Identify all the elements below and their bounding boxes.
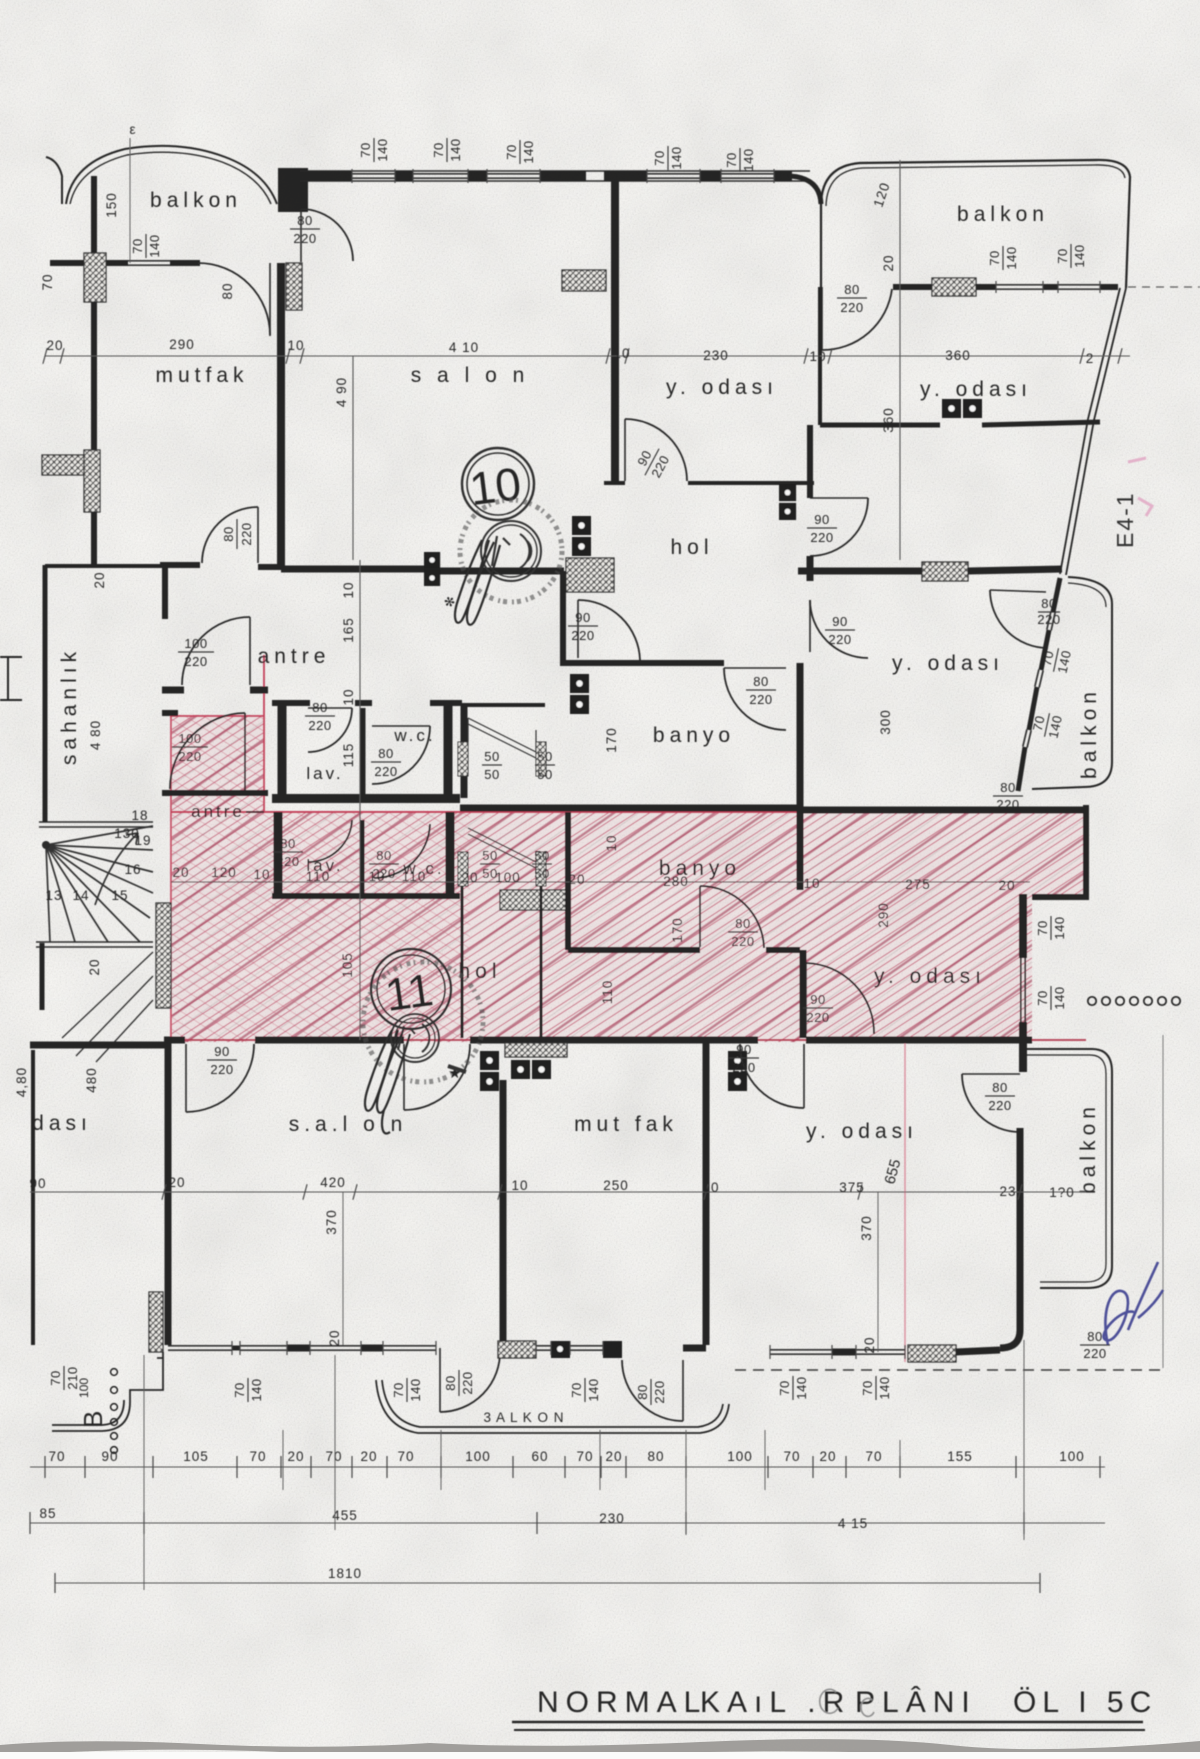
- svg-text:4 80: 4 80: [88, 720, 103, 750]
- svg-text:290: 290: [169, 337, 195, 352]
- svg-text:140: 140: [408, 1378, 423, 1401]
- svg-text:ε: ε: [129, 122, 136, 137]
- svg-text:ÖL I 5C: ÖL I 5C: [1013, 1686, 1157, 1719]
- svg-text:sahanlık: sahanlık: [58, 647, 81, 765]
- svg-text:105: 105: [183, 1449, 209, 1464]
- svg-text:18: 18: [131, 808, 148, 823]
- svg-text:10: 10: [702, 1180, 719, 1195]
- svg-text:70: 70: [860, 1380, 875, 1395]
- svg-text:70: 70: [1055, 248, 1070, 263]
- svg-text:140: 140: [249, 1378, 264, 1401]
- svg-text:20: 20: [92, 571, 107, 588]
- svg-text:220: 220: [210, 1062, 233, 1077]
- svg-text:70: 70: [130, 238, 145, 253]
- svg-text:20: 20: [605, 1449, 622, 1464]
- svg-text:140: 140: [1072, 244, 1087, 267]
- svg-text:80: 80: [992, 1080, 1007, 1095]
- svg-text:170: 170: [604, 727, 619, 753]
- svg-text:23: 23: [999, 1184, 1016, 1199]
- svg-text:220: 220: [732, 1060, 755, 1075]
- svg-text:80: 80: [297, 213, 312, 228]
- svg-text:220: 220: [374, 764, 397, 779]
- svg-text:4 90: 4 90: [334, 377, 349, 407]
- svg-text:hol: hol: [458, 960, 501, 983]
- svg-text:80: 80: [1000, 780, 1015, 795]
- svg-text:80: 80: [635, 1384, 650, 1399]
- svg-text:110: 110: [600, 980, 615, 1005]
- svg-text:70: 70: [391, 1382, 406, 1397]
- svg-text:y. odası: y. odası: [666, 376, 778, 399]
- svg-text:20: 20: [998, 878, 1015, 893]
- svg-text:10: 10: [803, 876, 820, 891]
- svg-text:90: 90: [575, 610, 590, 625]
- svg-text:90: 90: [814, 512, 829, 527]
- svg-text:115: 115: [341, 743, 356, 768]
- svg-text:w.c.: w.c.: [393, 726, 435, 745]
- svg-text:220: 220: [731, 934, 754, 949]
- svg-text:220: 220: [571, 628, 594, 643]
- svg-text:220: 220: [652, 1380, 667, 1403]
- svg-text:140: 140: [877, 1376, 892, 1399]
- svg-text:70: 70: [431, 142, 446, 157]
- svg-text:20: 20: [87, 958, 102, 975]
- svg-text:10: 10: [613, 346, 630, 361]
- svg-text:220: 220: [806, 1010, 829, 1025]
- svg-text:480: 480: [84, 1067, 99, 1093]
- svg-text:220: 220: [810, 530, 833, 545]
- svg-text:360: 360: [881, 407, 896, 433]
- svg-text:220: 220: [988, 1098, 1011, 1113]
- svg-text:250: 250: [603, 1178, 629, 1193]
- svg-text:50: 50: [534, 866, 549, 881]
- svg-text:90: 90: [736, 1042, 751, 1057]
- svg-text:220: 220: [276, 854, 299, 869]
- svg-text:1?0: 1?0: [1049, 1185, 1075, 1200]
- svg-text:220: 220: [293, 231, 316, 246]
- svg-text:140: 140: [1052, 986, 1067, 1009]
- svg-text:E4-1: E4-1: [1112, 491, 1138, 548]
- svg-text:balkon: balkon: [957, 203, 1049, 226]
- svg-text:14: 14: [72, 888, 89, 903]
- svg-text:80: 80: [378, 746, 393, 761]
- svg-text:220: 220: [239, 522, 254, 545]
- svg-text:300: 300: [878, 709, 893, 735]
- svg-text:70: 70: [783, 1449, 800, 1464]
- svg-text:20: 20: [461, 870, 478, 885]
- svg-text:85: 85: [39, 1506, 56, 1521]
- svg-text:50: 50: [534, 848, 549, 863]
- svg-text:70: 70: [358, 142, 373, 157]
- svg-text:370: 370: [324, 1209, 339, 1235]
- svg-text:90: 90: [214, 1044, 229, 1059]
- svg-text:NORMAL: NORMAL: [537, 1686, 707, 1719]
- svg-text:3 A L K O N: 3 A L K O N: [483, 1410, 564, 1425]
- svg-text:y. odası: y. odası: [874, 965, 986, 988]
- svg-text:10: 10: [809, 349, 826, 364]
- svg-text:220: 220: [184, 654, 207, 669]
- svg-text:140: 140: [1004, 246, 1019, 269]
- svg-text:155: 155: [947, 1449, 973, 1464]
- svg-text:antre: antre: [191, 802, 245, 821]
- svg-text:100: 100: [1059, 1449, 1085, 1464]
- svg-text:10: 10: [368, 869, 385, 884]
- svg-text:100: 100: [184, 636, 207, 651]
- svg-text:10: 10: [341, 581, 356, 598]
- svg-text:70: 70: [724, 152, 739, 167]
- svg-text:balkon: balkon: [150, 189, 242, 212]
- svg-text:4 10: 4 10: [449, 340, 479, 355]
- svg-text:140: 140: [147, 234, 162, 257]
- svg-text:110: 110: [402, 869, 427, 884]
- svg-text:20: 20: [46, 338, 63, 353]
- svg-text:10: 10: [287, 338, 304, 353]
- svg-text:balkon: balkon: [1078, 687, 1101, 779]
- svg-text:13: 13: [45, 888, 62, 903]
- svg-text:455: 455: [332, 1508, 358, 1523]
- svg-text:20: 20: [287, 1449, 304, 1464]
- svg-text:170: 170: [670, 917, 685, 943]
- svg-text:20: 20: [172, 865, 189, 880]
- svg-text:140: 140: [448, 138, 463, 161]
- svg-text:50: 50: [484, 767, 499, 782]
- svg-text:mutfak: mutfak: [155, 364, 248, 387]
- svg-text:dası: dası: [32, 1112, 92, 1135]
- svg-text:B: B: [78, 1411, 108, 1428]
- svg-text:70: 70: [865, 1449, 882, 1464]
- svg-text:80: 80: [220, 282, 235, 299]
- svg-text:140: 140: [741, 148, 756, 171]
- svg-text:10: 10: [604, 834, 619, 851]
- svg-text:220: 220: [749, 692, 772, 707]
- svg-text:70: 70: [576, 1449, 593, 1464]
- svg-text:70: 70: [652, 150, 667, 165]
- svg-text:hol: hol: [670, 536, 713, 559]
- svg-text:70: 70: [232, 1382, 247, 1397]
- svg-text:y. odası: y. odası: [892, 652, 1004, 675]
- svg-text:80: 80: [443, 1375, 458, 1390]
- svg-text:80: 80: [312, 700, 327, 715]
- svg-text:balkon: balkon: [1077, 1102, 1100, 1194]
- svg-text:70: 70: [48, 1370, 63, 1385]
- svg-text:220: 220: [308, 718, 331, 733]
- svg-text:20: 20: [360, 1449, 377, 1464]
- svg-text:50: 50: [537, 767, 552, 782]
- svg-text:20: 20: [168, 1175, 185, 1190]
- svg-text:80: 80: [280, 836, 295, 851]
- svg-text:130: 130: [114, 826, 140, 841]
- svg-text:80: 80: [221, 526, 236, 541]
- svg-text:4,80: 4,80: [14, 1067, 29, 1097]
- svg-text:70: 70: [1030, 714, 1048, 732]
- svg-text:80: 80: [753, 674, 768, 689]
- svg-text:80: 80: [844, 282, 859, 297]
- svg-text:275: 275: [905, 877, 931, 892]
- svg-text:290: 290: [876, 902, 891, 928]
- svg-text:y. odası: y. odası: [806, 1120, 918, 1143]
- svg-text:100: 100: [495, 870, 521, 885]
- svg-text:lav.: lav.: [306, 764, 343, 783]
- svg-text:70: 70: [325, 1449, 342, 1464]
- svg-text:100: 100: [465, 1449, 491, 1464]
- svg-text:90: 90: [29, 1176, 46, 1191]
- svg-text:370: 370: [859, 1215, 874, 1241]
- svg-text:80: 80: [376, 848, 391, 863]
- svg-text:y. odası: y. odası: [920, 378, 1032, 401]
- svg-text:70: 70: [504, 144, 519, 159]
- svg-text:70: 70: [48, 1449, 65, 1464]
- svg-text:10: 10: [511, 1178, 528, 1193]
- svg-text:mut fak: mut fak: [574, 1113, 678, 1136]
- svg-text:2: 2: [1086, 351, 1095, 366]
- svg-text:100: 100: [727, 1449, 753, 1464]
- svg-text:220: 220: [178, 749, 201, 764]
- svg-text:80: 80: [647, 1449, 664, 1464]
- svg-text:140: 140: [1052, 916, 1067, 939]
- svg-text:10: 10: [253, 867, 270, 882]
- svg-text:70: 70: [1035, 990, 1050, 1005]
- svg-text:140: 140: [586, 1378, 601, 1401]
- svg-text:220: 220: [840, 300, 863, 315]
- svg-text:100: 100: [77, 1378, 91, 1398]
- svg-text:90: 90: [832, 614, 847, 629]
- svg-text:20: 20: [819, 1449, 836, 1464]
- svg-text:60: 60: [531, 1449, 548, 1464]
- svg-text:70: 70: [1039, 649, 1057, 667]
- svg-text:105: 105: [340, 952, 355, 978]
- svg-text:140: 140: [375, 138, 390, 161]
- svg-text:80: 80: [1087, 1329, 1102, 1344]
- svg-text:10: 10: [467, 457, 524, 515]
- svg-text:50: 50: [484, 749, 499, 764]
- svg-text:20: 20: [881, 254, 896, 271]
- svg-text:11: 11: [382, 963, 437, 1021]
- svg-text:280: 280: [663, 874, 689, 889]
- svg-text:antre: antre: [258, 645, 331, 668]
- svg-text:70: 70: [249, 1449, 266, 1464]
- svg-text:20: 20: [862, 1336, 877, 1353]
- svg-text:220: 220: [828, 632, 851, 647]
- svg-text:90: 90: [101, 1449, 118, 1464]
- svg-text:70: 70: [40, 273, 55, 290]
- svg-text:70: 70: [569, 1382, 584, 1397]
- svg-text:150: 150: [104, 192, 119, 218]
- svg-text:230: 230: [599, 1511, 625, 1526]
- svg-text:20: 20: [327, 1329, 342, 1346]
- svg-text:50: 50: [537, 749, 552, 764]
- svg-text:375: 375: [839, 1180, 865, 1195]
- svg-text:80: 80: [735, 916, 750, 931]
- svg-text:16: 16: [124, 862, 141, 877]
- svg-text:banyo: banyo: [653, 724, 735, 747]
- svg-text:70: 70: [777, 1380, 792, 1395]
- svg-text:10: 10: [341, 688, 356, 705]
- svg-text:165: 165: [341, 617, 356, 643]
- svg-text:230: 230: [703, 348, 729, 363]
- svg-text:140: 140: [794, 1376, 809, 1399]
- svg-text:s a l o n: s a l o n: [411, 364, 530, 387]
- svg-text:15: 15: [111, 888, 128, 903]
- svg-text:110: 110: [306, 869, 331, 884]
- svg-text:70: 70: [397, 1449, 414, 1464]
- svg-text:100: 100: [178, 731, 201, 746]
- svg-text:140: 140: [521, 140, 536, 163]
- svg-text:220: 220: [460, 1371, 475, 1394]
- svg-text:120: 120: [211, 865, 237, 880]
- svg-text:220: 220: [1083, 1346, 1106, 1361]
- svg-text:1810: 1810: [328, 1566, 362, 1581]
- svg-text:420: 420: [320, 1175, 346, 1190]
- svg-text:50: 50: [482, 848, 497, 863]
- svg-text:70: 70: [1035, 920, 1050, 935]
- svg-text:70: 70: [987, 250, 1002, 265]
- svg-text:4 15: 4 15: [838, 1516, 868, 1531]
- svg-text:360: 360: [945, 348, 971, 363]
- svg-text:90: 90: [810, 992, 825, 1007]
- svg-text:20: 20: [568, 872, 585, 887]
- svg-text:140: 140: [669, 146, 684, 169]
